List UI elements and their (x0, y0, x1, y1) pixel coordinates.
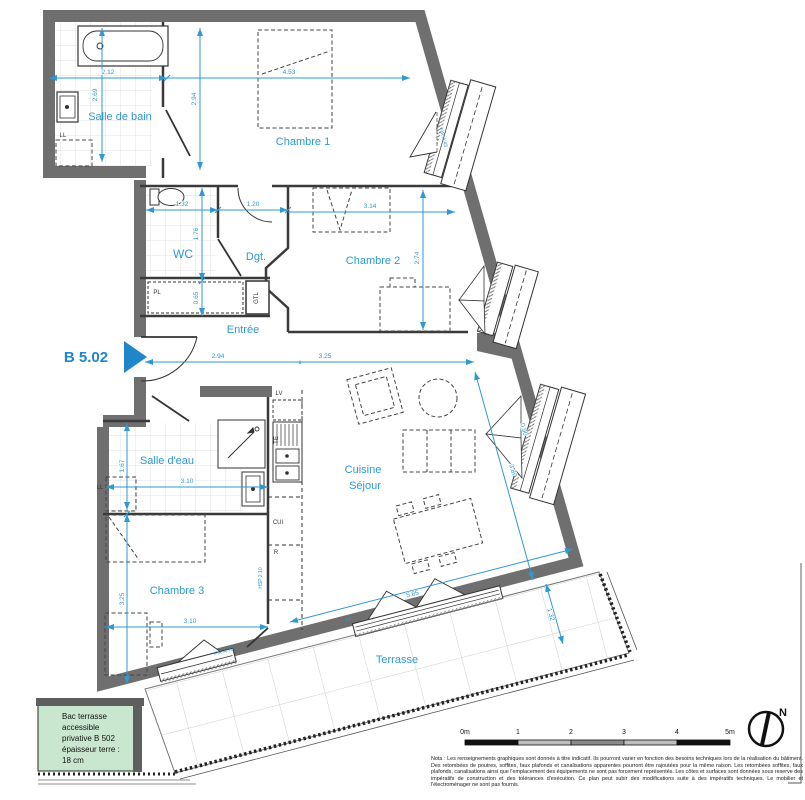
dim-sejour-width: 3.25 (319, 353, 332, 360)
dim-ch1-height: 2.94 (191, 92, 198, 105)
dim-sde-width: 3.10 (181, 478, 194, 485)
label-salle-deau: Salle d'eau (140, 455, 194, 467)
label-cuisine: Cuisine (345, 464, 382, 476)
label-dgt: Dgt. (246, 251, 266, 263)
label-duct-gtl: GTL (254, 292, 260, 304)
dim-ch1-width: 4.53 (283, 69, 296, 76)
dim-ch3-height: 3.25 (119, 592, 126, 605)
window-chambre1 (410, 75, 496, 191)
label-washer-sde: LL (97, 485, 104, 491)
label-salle-de-bain: Salle de bain (88, 111, 152, 123)
dim-gtl-height: 0.65 (193, 291, 200, 304)
label-cooker: CUI (273, 520, 284, 526)
dim-ch2-height: 2.74 (414, 251, 421, 264)
unit-id: B 5.02 (64, 341, 147, 373)
kitchen-sink (273, 422, 302, 482)
scale-bar: 0m 1 2 3 4 5m (460, 729, 735, 745)
floorplan-page: 2.12 4.53 2.69 2.94 1.32 1.20 3.14 1.76 … (0, 0, 805, 800)
label-chambre1: Chambre 1 (276, 136, 330, 148)
north-arrow-icon: N (749, 707, 787, 746)
label-sejour: Séjour (349, 480, 381, 492)
bay-window-sejour (486, 381, 586, 504)
shower (218, 420, 265, 468)
legend-line3: privative B 502 (62, 734, 115, 743)
dim-sdb-height: 2.69 (92, 88, 99, 101)
dim-ch3-width: 3.10 (184, 618, 197, 625)
window-chambre2 (459, 260, 538, 349)
label-washer-sdb: LL (60, 133, 67, 139)
label-closet-pl: PL (153, 290, 161, 296)
label-dishwasher: LV (276, 391, 283, 397)
label-entree: Entrée (227, 324, 259, 336)
unit-id-label: B 5.02 (64, 349, 108, 366)
label-terrasse: Terrasse (376, 654, 418, 666)
tiled-floors (55, 22, 244, 513)
scale-0m: 0m (460, 729, 470, 736)
scale-4: 4 (675, 729, 679, 736)
legend-line2: accessible (62, 723, 100, 732)
kitchen-wall-band (200, 386, 272, 397)
label-sink-te: TE (274, 436, 280, 444)
legend-line4: épaisseur terre : (62, 745, 120, 754)
dim-ch2-width: 3.14 (364, 203, 377, 210)
label-fridge: R (274, 550, 279, 556)
scale-1: 1 (516, 729, 520, 736)
dim-wc-width: 1.32 (176, 201, 189, 208)
nota-text: Nota : Les renseignements graphiques son… (431, 756, 803, 789)
dim-wc-height: 1.76 (193, 227, 200, 240)
partitions (103, 22, 468, 624)
label-chambre3: Chambre 3 (150, 585, 204, 597)
label-chambre2: Chambre 2 (346, 255, 400, 267)
dim-entree-width: 2.94 (212, 353, 225, 360)
dim-sdb-width: 2.12 (102, 69, 115, 76)
entry-arrow-icon (124, 341, 147, 373)
washbasin (242, 472, 264, 506)
scale-2: 2 (569, 729, 573, 736)
dim-dgt-width: 1.20 (247, 201, 260, 208)
dim-sde-height: 1.67 (119, 459, 126, 472)
legend-line1: Bac terrasse (62, 712, 107, 721)
legend-line5: 18 cm (62, 756, 84, 765)
bathroom-sink (57, 92, 78, 122)
north-label: N (779, 707, 787, 719)
scale-5m: 5m (725, 729, 735, 736)
label-ceiling-height: HSP 2.10 (258, 567, 264, 589)
label-wc: WC (173, 247, 193, 261)
dim-break-mark: * (298, 359, 303, 371)
floorplan-drawing: 2.12 4.53 2.69 2.94 1.32 1.20 3.14 1.76 … (0, 0, 805, 800)
dishwasher-box (273, 400, 302, 420)
bathtub (78, 26, 168, 66)
page-border-mark (788, 563, 801, 783)
scale-3: 3 (622, 729, 626, 736)
